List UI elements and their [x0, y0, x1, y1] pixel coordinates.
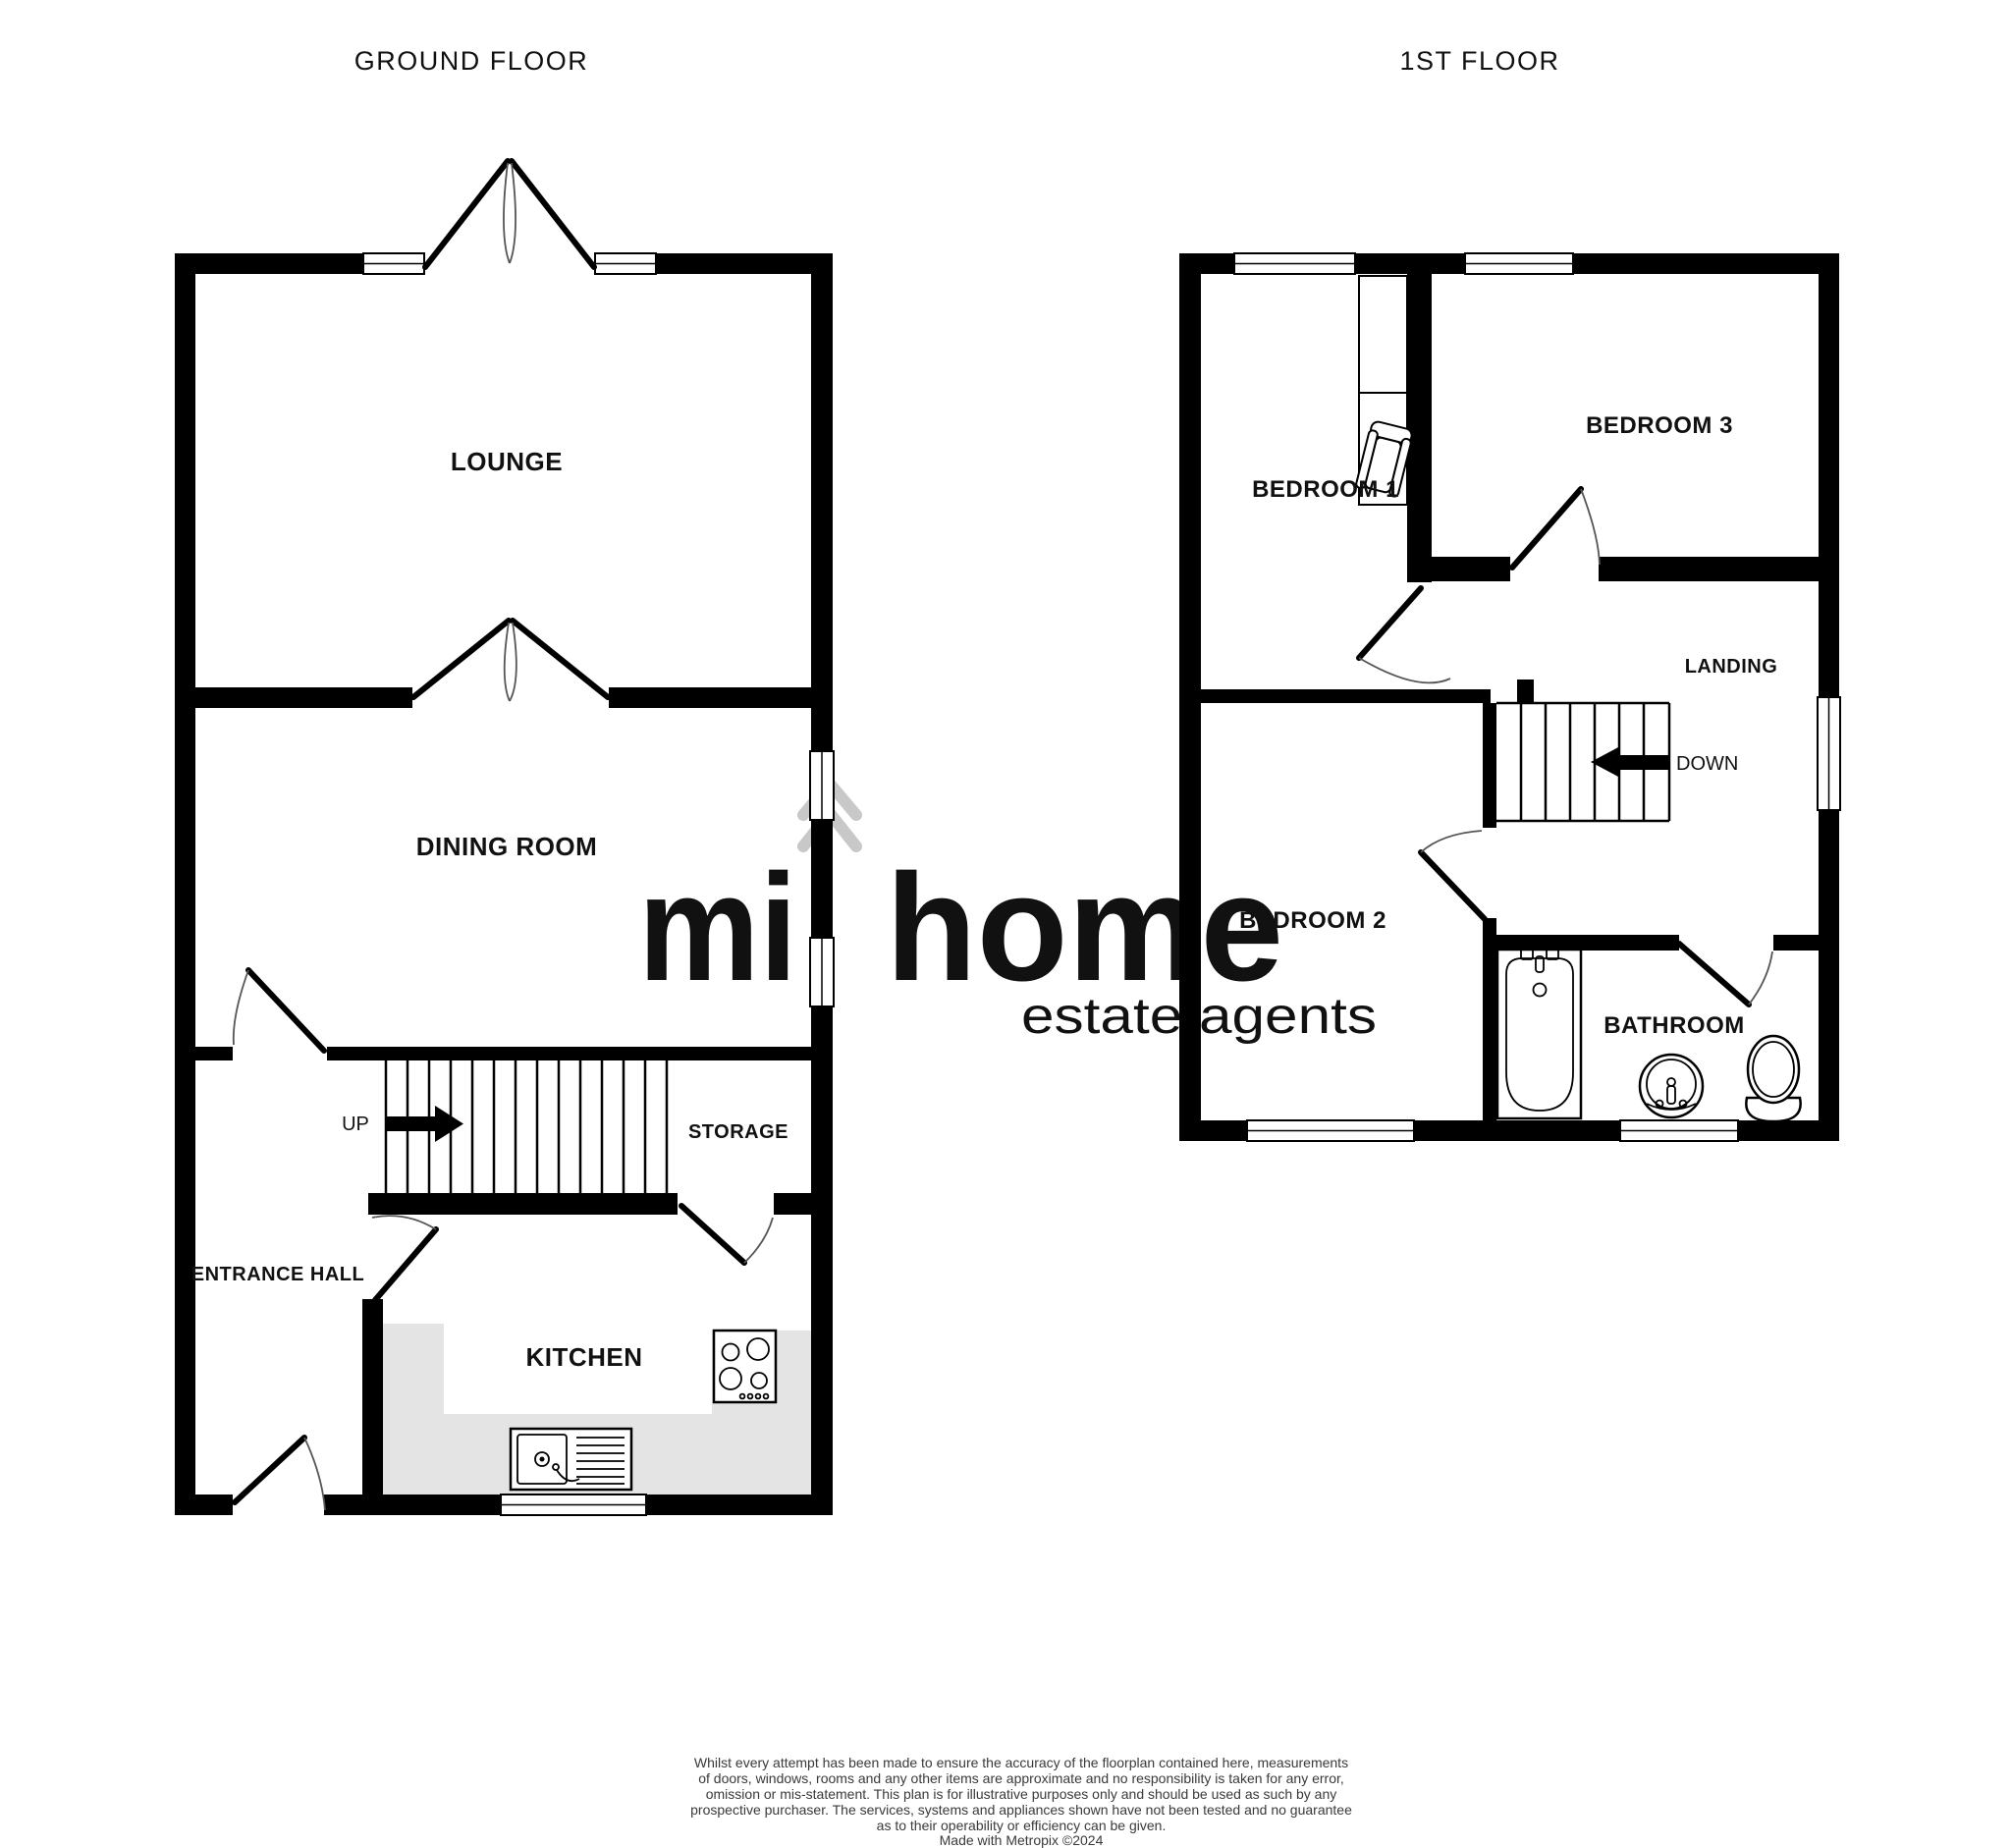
sink-icon [511, 1429, 631, 1490]
ground-floor-plan: GROUND FLOOR [175, 46, 834, 1518]
toilet-icon [1746, 1036, 1800, 1121]
disclaimer-line: omission or mis-statement. This plan is … [706, 1786, 1337, 1802]
wall-segment [175, 253, 195, 1515]
stairs-up-label: UP [342, 1114, 369, 1135]
stairs-down-label: DOWN [1676, 753, 1738, 775]
wall-segment [1432, 557, 1819, 581]
window [1234, 253, 1355, 274]
window [1465, 253, 1573, 274]
disclaimer-line: Whilst every attempt has been made to en… [694, 1755, 1348, 1770]
disclaimer-credit: Made with Metropix ©2024 [940, 1832, 1104, 1848]
room-label-landing: LANDING [1685, 656, 1778, 678]
door-opening [1679, 932, 1773, 953]
door-swing [234, 970, 324, 1051]
door-swing [372, 1216, 436, 1300]
room-label-kitchen: KITCHEN [525, 1342, 642, 1372]
door-swing [1359, 588, 1450, 682]
door-opening [233, 1492, 324, 1518]
wardrobe [1355, 276, 1414, 505]
window [501, 1495, 646, 1515]
room-label-bedroom-3: BEDROOM 3 [1586, 412, 1733, 439]
watermark-word-mi: mi [638, 842, 797, 1012]
wall-segment [811, 253, 833, 1515]
down-arrow-icon [1591, 746, 1669, 778]
disclaimer-line: prospective purchaser. The services, sys… [690, 1802, 1352, 1818]
wall-segment [1179, 253, 1201, 1141]
wall-segment [1483, 703, 1496, 828]
window [810, 751, 834, 820]
window [1620, 1120, 1738, 1141]
door-opening [233, 1044, 327, 1063]
wall-segment [362, 1299, 383, 1495]
ground-floor-title: GROUND FLOOR [354, 46, 589, 76]
disclaimer-line: as to their operability or efficiency ca… [877, 1818, 1167, 1833]
window [1247, 1120, 1414, 1141]
room-label-bedroom-1: BEDROOM 1 [1252, 476, 1399, 503]
wall-segment [1483, 918, 1496, 1120]
room-label-bathroom: BATHROOM [1603, 1012, 1745, 1039]
door-opening [424, 250, 595, 277]
staircase-up: UP [342, 1060, 667, 1193]
bath-icon [1497, 949, 1581, 1118]
disclaimer-line: of doors, windows, rooms and any other i… [698, 1770, 1344, 1786]
wall-segment [1201, 689, 1491, 703]
room-label-bedroom-2: BEDROOM 2 [1239, 907, 1386, 934]
wall-segment [1517, 679, 1534, 703]
window [810, 938, 834, 1006]
floorplan-page: mi home estate agents GROUND FLOOR [0, 0, 2011, 1848]
hob-icon [714, 1331, 776, 1402]
door-swing [1421, 831, 1485, 919]
room-label-lounge: LOUNGE [451, 447, 563, 476]
basin-icon [1640, 1055, 1703, 1117]
room-label-storage: STORAGE [688, 1121, 788, 1143]
first-floor-title: 1ST FLOOR [1399, 46, 1559, 76]
window [1818, 697, 1840, 810]
room-label-dining: DINING ROOM [416, 832, 598, 861]
window [363, 253, 424, 274]
wall-segment [774, 1193, 811, 1215]
staircase-down: DOWN [1496, 703, 1738, 821]
window [595, 253, 656, 274]
wall-segment [1407, 274, 1432, 582]
door-swing [681, 1206, 773, 1263]
wall-segment [368, 1193, 678, 1215]
room-label-entrance-hall: ENTRANCE HALL [191, 1264, 365, 1285]
disclaimer: Whilst every attempt has been made to en… [690, 1755, 1352, 1848]
floorplan-canvas: mi home estate agents GROUND FLOOR [0, 0, 2011, 1848]
